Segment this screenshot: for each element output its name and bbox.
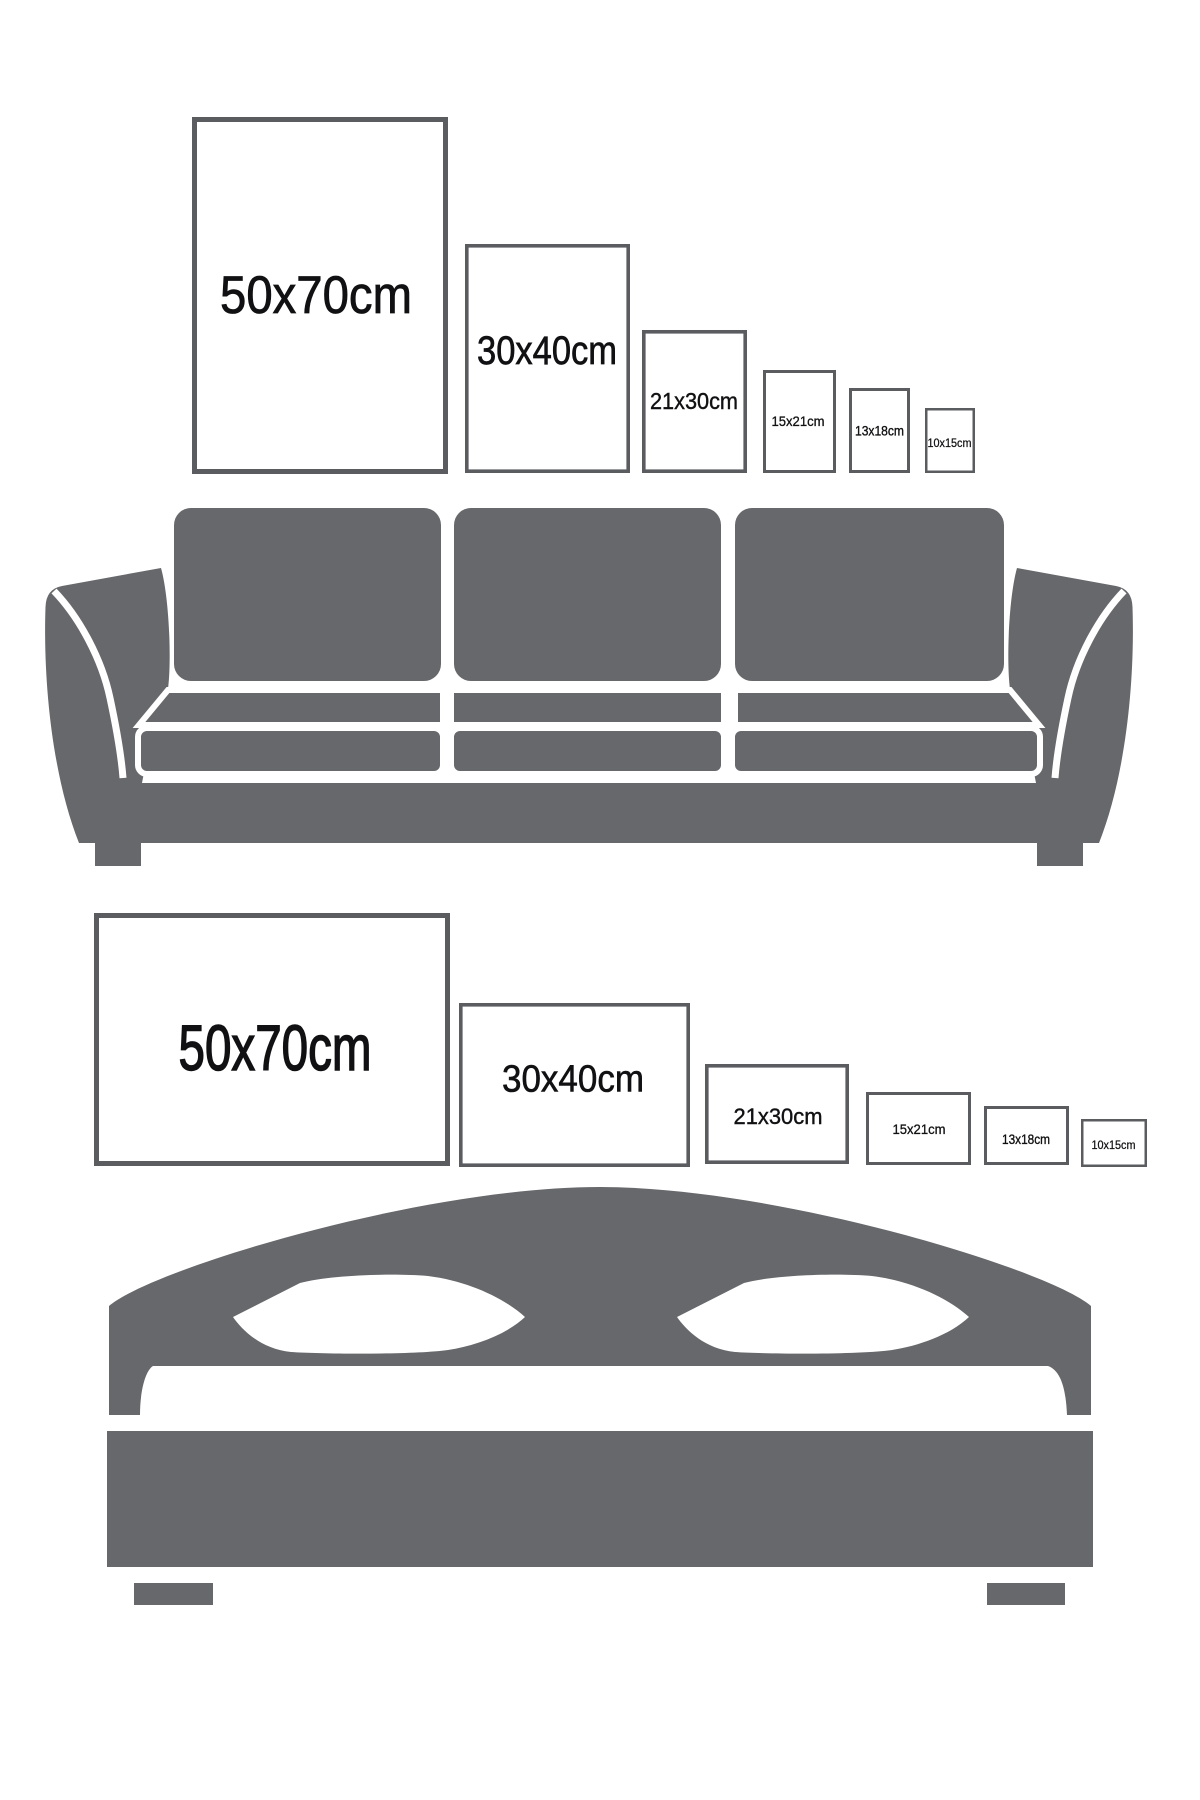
- svg-text:30x40cm: 30x40cm: [502, 1059, 644, 1101]
- svg-text:13x18cm: 13x18cm: [1002, 1131, 1050, 1147]
- svg-text:13x18cm: 13x18cm: [855, 423, 904, 439]
- svg-text:10x15cm: 10x15cm: [928, 436, 972, 450]
- svg-text:15x21cm: 15x21cm: [893, 1121, 946, 1137]
- svg-text:50x70cm: 50x70cm: [220, 266, 412, 325]
- svg-text:15x21cm: 15x21cm: [772, 413, 825, 429]
- svg-text:21x30cm: 21x30cm: [734, 1104, 823, 1129]
- svg-text:30x40cm: 30x40cm: [477, 329, 617, 373]
- svg-text:50x70cm: 50x70cm: [179, 1012, 372, 1084]
- svg-text:10x15cm: 10x15cm: [1092, 1138, 1136, 1152]
- svg-text:21x30cm: 21x30cm: [650, 388, 738, 414]
